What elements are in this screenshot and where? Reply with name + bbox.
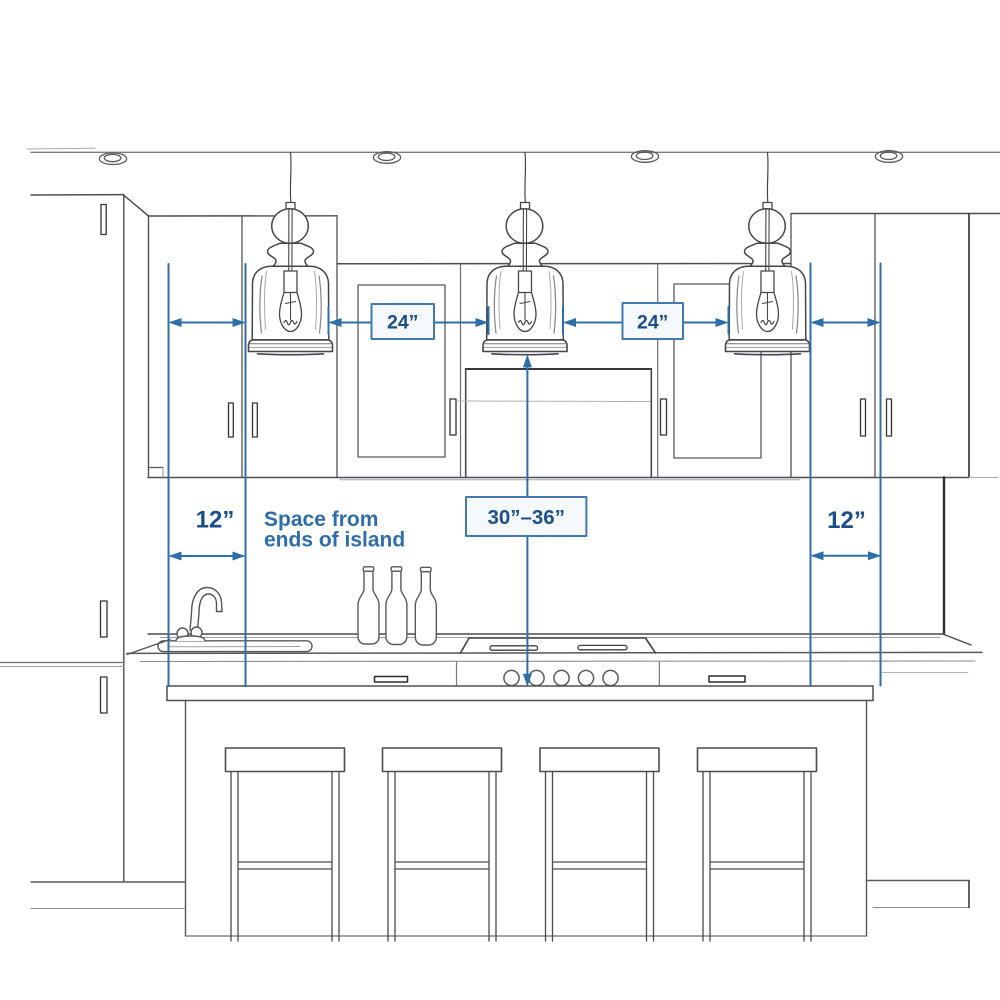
svg-text:12”: 12” <box>196 507 235 534</box>
svg-text:30”–36”: 30”–36” <box>487 506 565 529</box>
svg-text:24”: 24” <box>387 312 418 334</box>
svg-text:12”: 12” <box>827 507 866 534</box>
svg-text:24”: 24” <box>637 312 668 334</box>
svg-text:ends of island: ends of island <box>264 529 405 552</box>
